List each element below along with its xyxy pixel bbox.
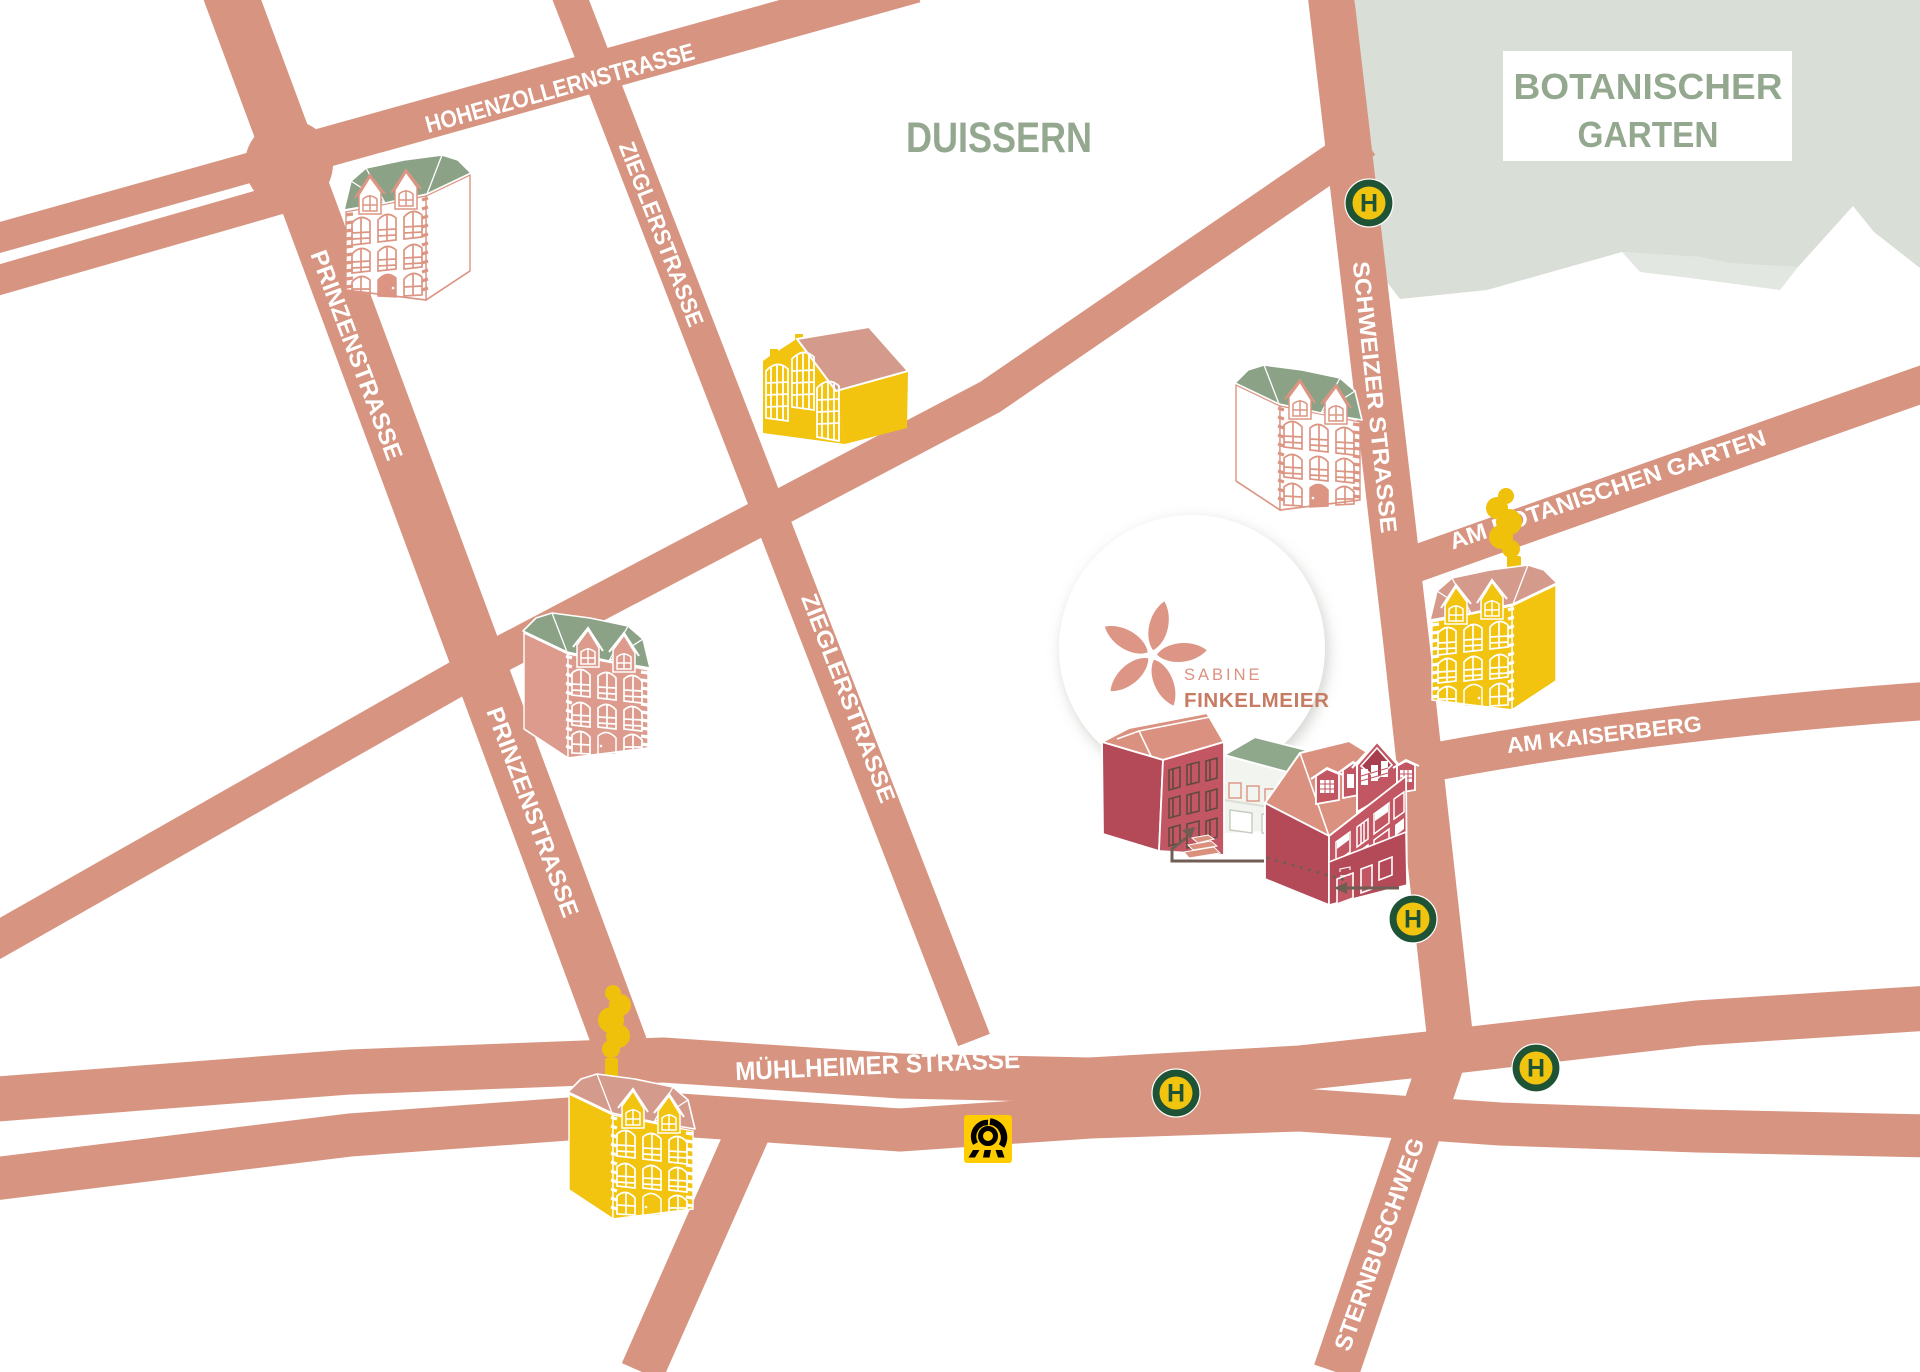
svg-text:DUISSERN: DUISSERN bbox=[906, 114, 1092, 162]
svg-text:H: H bbox=[1404, 906, 1422, 934]
svg-text:H: H bbox=[1167, 1080, 1185, 1108]
svg-text:H: H bbox=[1360, 190, 1378, 218]
svg-text:FINKELMEIER: FINKELMEIER bbox=[1184, 689, 1330, 712]
svg-text:H: H bbox=[1527, 1055, 1545, 1083]
svg-text:BOTANISCHER: BOTANISCHER bbox=[1514, 66, 1783, 107]
svg-text:GARTEN: GARTEN bbox=[1578, 114, 1719, 155]
svg-text:SABINE: SABINE bbox=[1184, 666, 1263, 684]
